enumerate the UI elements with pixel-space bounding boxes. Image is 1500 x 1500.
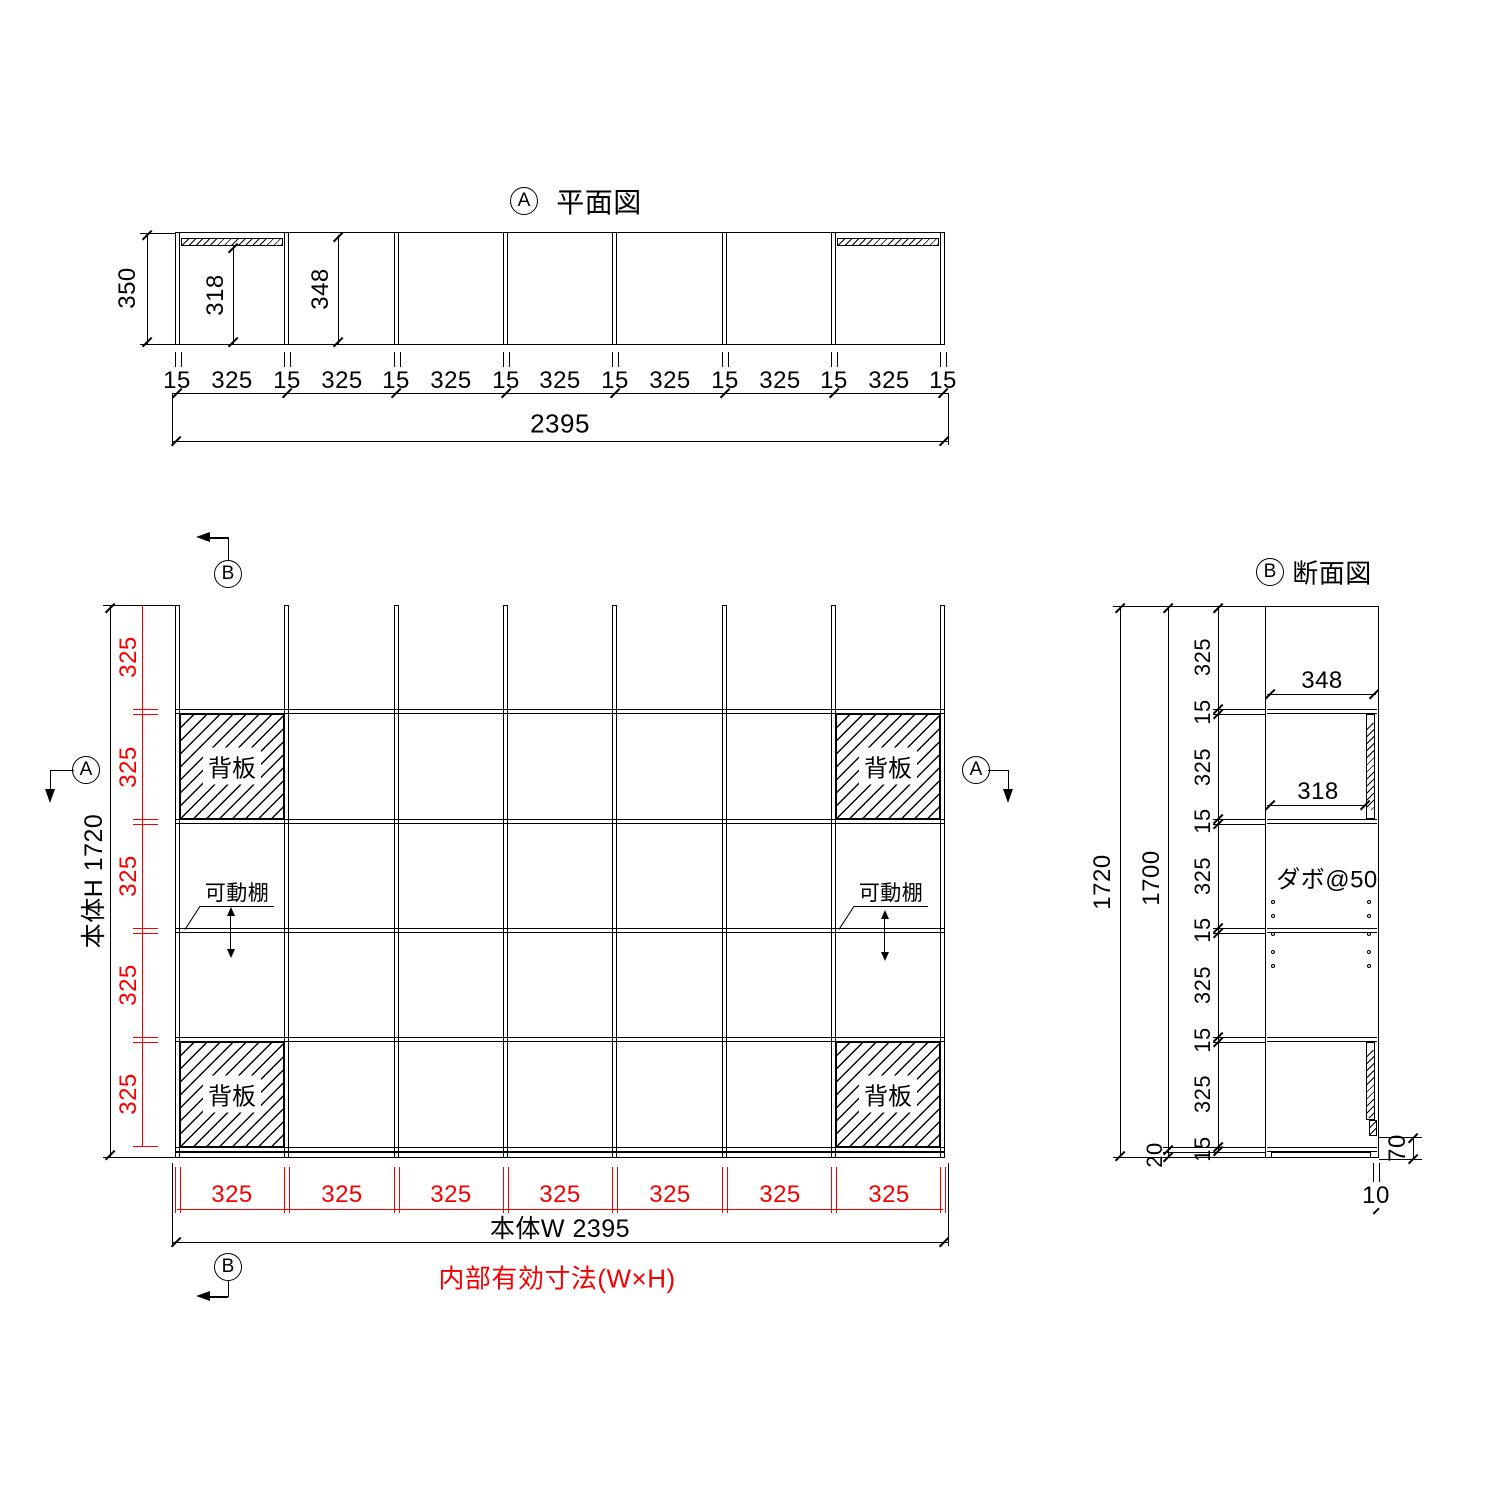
plan-divider [175,232,180,345]
marker-letter: B [222,1256,235,1278]
marker-letter: B [222,563,235,585]
plan-chain-dim: 325 [759,367,801,395]
dim-line [1120,606,1121,1158]
chain-tick-pair [831,1167,837,1213]
dim-line [172,441,948,442]
arrow-down-icon [227,949,235,958]
back-panel-label: 背板 [859,748,917,785]
plan-divider [722,232,727,345]
width-chain-dim: 325 [539,1181,581,1209]
extension-tick-pair [284,352,291,367]
adjust-arrow-line [230,915,231,951]
extension-tick-pair [394,352,401,367]
dowel-hole [1271,932,1275,936]
plan-inner-depth-open-dim: 348 [307,268,335,310]
dim-line [338,235,339,344]
cad-drawing-canvas: A 平面図 318 348 350 15 325 15 325 15 325 1… [0,0,1500,1500]
section-chain-dim: 15 [1190,699,1216,724]
dowel-pitch-label: ダボ@50 [1276,860,1378,895]
section-chain-dim: 325 [1190,638,1216,676]
section-shelf-line [1267,709,1377,714]
movable-shelf-label: 可動棚 [205,877,270,907]
dowel-hole [1367,950,1371,954]
movable-shelf-label: 可動棚 [859,877,924,907]
height-chain-dim: 325 [115,964,143,1006]
section-marker-letter: B [1264,561,1277,583]
extension-tick-pair [503,352,510,367]
extension-tick-pair [612,352,619,367]
extension-line [1213,933,1266,934]
section-back-panel-rail [1369,1120,1377,1136]
section-shelf-line [1267,819,1377,824]
width-chain-dim: 325 [211,1181,253,1209]
height-chain-dim: 325 [115,855,143,897]
section-view-title: 断面図 [1292,554,1372,591]
width-chain-dim: 325 [649,1181,691,1209]
plan-chain-dim: 325 [649,367,691,395]
plan-depth-dim: 350 [114,267,142,309]
section-chain-dim: 325 [1190,1075,1216,1113]
extension-line [172,393,173,445]
section-base-height-dim: 20 [1142,1142,1168,1167]
width-chain-dim: 325 [321,1181,363,1209]
plan-body-outline [175,232,945,345]
plan-back-panel-hatch [837,238,939,246]
plan-chain-dim: 325 [430,367,472,395]
chain-tick-pair [940,1167,946,1213]
height-chain-dim: 325 [115,1073,143,1115]
section-shelf-line [1267,1037,1377,1042]
chain-tick-pair [612,1167,618,1213]
section-arrow-down-icon [45,789,55,803]
adjust-arrow-line [884,918,885,954]
base-plinth [176,1152,944,1158]
extension-line [1213,824,1266,825]
back-panel-label: 背板 [859,1076,917,1113]
section-chain-dim: 15 [1190,808,1216,833]
section-base-plinth [1271,1152,1371,1158]
arrow-up-icon [881,910,889,919]
partition [503,605,508,1158]
dim-line [110,605,111,1158]
chain-tick [133,1042,158,1043]
plan-chain-dim: 325 [211,367,253,395]
partition [284,605,289,1158]
dim-line [233,246,234,344]
chain-tick [133,824,158,825]
plan-divider [284,232,289,345]
leader-line [854,906,928,907]
section-depth-back-dim: 318 [1297,778,1339,806]
plan-divider [831,232,836,345]
section-marker-line [988,770,1008,772]
section-marker-line [210,1296,228,1298]
chain-tick-pair [503,1167,509,1213]
section-chain-dim: 325 [1190,857,1216,895]
back-panel-label: 背板 [203,748,261,785]
plan-inner-depth-back-dim: 318 [202,274,230,316]
dowel-hole [1271,950,1275,954]
width-chain-dim: 325 [430,1181,472,1209]
section-movable-shelf-line [1267,928,1377,933]
chain-tick-pair [394,1167,400,1213]
body-height-dim: 本体H 1720 [74,814,110,949]
section-marker-line [50,770,52,790]
section-chain-dim: 15 [1190,1027,1216,1052]
chain-tick-pair [284,1167,290,1213]
arrow-down-icon [881,952,889,961]
partition [831,605,836,1158]
plan-chain-dim: 325 [868,367,910,395]
section-marker-line [50,770,74,772]
dowel-hole [1367,964,1371,968]
section-chain-dim: 325 [1190,748,1216,786]
internal-dimensions-caption: 内部有効寸法(W×H) [438,1259,675,1296]
plan-overall-width-dim: 2395 [530,409,590,440]
section-inner-height-dim: 1700 [1138,850,1166,905]
plan-view-title: 平面図 [556,181,642,221]
dowel-hole [1367,932,1371,936]
dim-line [1168,606,1169,1158]
section-depth-open-dim: 348 [1301,667,1343,695]
width-chain-dim: 325 [759,1181,801,1209]
chain-tick [133,933,158,934]
leader-line [200,906,274,907]
plan-back-panel-hatch [181,238,283,246]
leader-line [185,906,201,930]
extension-line [1213,1042,1266,1043]
section-chain-dim: 15 [1190,1136,1216,1161]
extension-line [172,1163,173,1246]
dim-line [147,233,148,344]
extension-tick-pair [722,352,729,367]
dowel-hole [1367,914,1371,918]
width-chain-dim: 325 [868,1181,910,1209]
shelf-line [176,819,944,824]
chain-tick [133,1037,158,1038]
partition [612,605,617,1158]
plan-divider [503,232,508,345]
section-chain-dim: 15 [1190,917,1216,942]
partition [394,605,399,1158]
section-marker-line [228,537,230,562]
shelf-line [176,709,944,714]
section-marker-a-left: A [72,756,100,784]
section-back-panel-hatch [1367,1050,1374,1118]
extension-line [140,233,176,234]
extension-tick-pair [175,352,182,367]
section-marker-a-right: A [962,756,990,784]
section-arrow-left-icon [196,1291,210,1301]
side-panel [175,605,180,1158]
section-marker-b-bottom: B [214,1253,242,1281]
height-chain-dim: 325 [115,636,143,678]
chain-tick [133,709,158,710]
movable-shelf-line [176,928,944,933]
shelf-line [176,1037,944,1042]
plan-divider [940,232,945,345]
marker-letter: A [80,759,93,781]
section-view-marker-circle: B [1256,558,1284,586]
dowel-hole [1271,914,1275,918]
plan-divider [394,232,399,345]
body-width-dim: 本体W 2395 [490,1209,630,1245]
plan-divider [612,232,617,345]
extension-line [103,1157,178,1158]
plan-chain-dim: 325 [321,367,363,395]
section-chain-dim: 325 [1190,966,1216,1004]
chain-tick-pair [722,1167,728,1213]
arrow-up-icon [227,907,235,916]
section-marker-b-top: B [214,560,242,588]
height-chain-dim: 325 [115,746,143,788]
leader-line [839,906,855,930]
section-overall-height-dim: 1720 [1089,854,1117,909]
chain-tick [133,819,158,820]
section-back-panel-gap-dim: 70 [1384,1134,1412,1162]
marker-letter: A [970,759,983,781]
chain-dim-line [1218,606,1219,1152]
section-back-panel-hatch [1367,723,1374,810]
section-arrow-left-icon [196,532,210,542]
plan-view-marker-circle: A [510,187,538,215]
section-marker-line [228,1280,230,1297]
dowel-hole [1367,900,1371,904]
side-panel [940,605,945,1158]
chain-tick [133,714,158,715]
dim-line [1379,1163,1380,1182]
chain-tick [133,1146,158,1147]
extension-line [948,1163,949,1246]
extension-tick-pair [940,352,947,367]
dim-line [1373,1163,1374,1182]
section-base-setback-dim: 10 [1362,1182,1390,1210]
dowel-hole [1271,964,1275,968]
chain-tick [133,928,158,929]
chain-tick-pair [175,1167,181,1213]
dowel-hole [1271,900,1275,904]
extension-line [1213,714,1266,715]
partition [722,605,727,1158]
plan-marker-letter: A [518,190,531,212]
extension-line [1113,606,1266,607]
plan-chain-dim: 325 [539,367,581,395]
section-marker-line [1008,770,1010,790]
section-arrow-down-icon [1003,789,1013,803]
back-panel-label: 背板 [203,1076,261,1113]
extension-tick-pair [831,352,838,367]
section-marker-line [210,537,228,539]
